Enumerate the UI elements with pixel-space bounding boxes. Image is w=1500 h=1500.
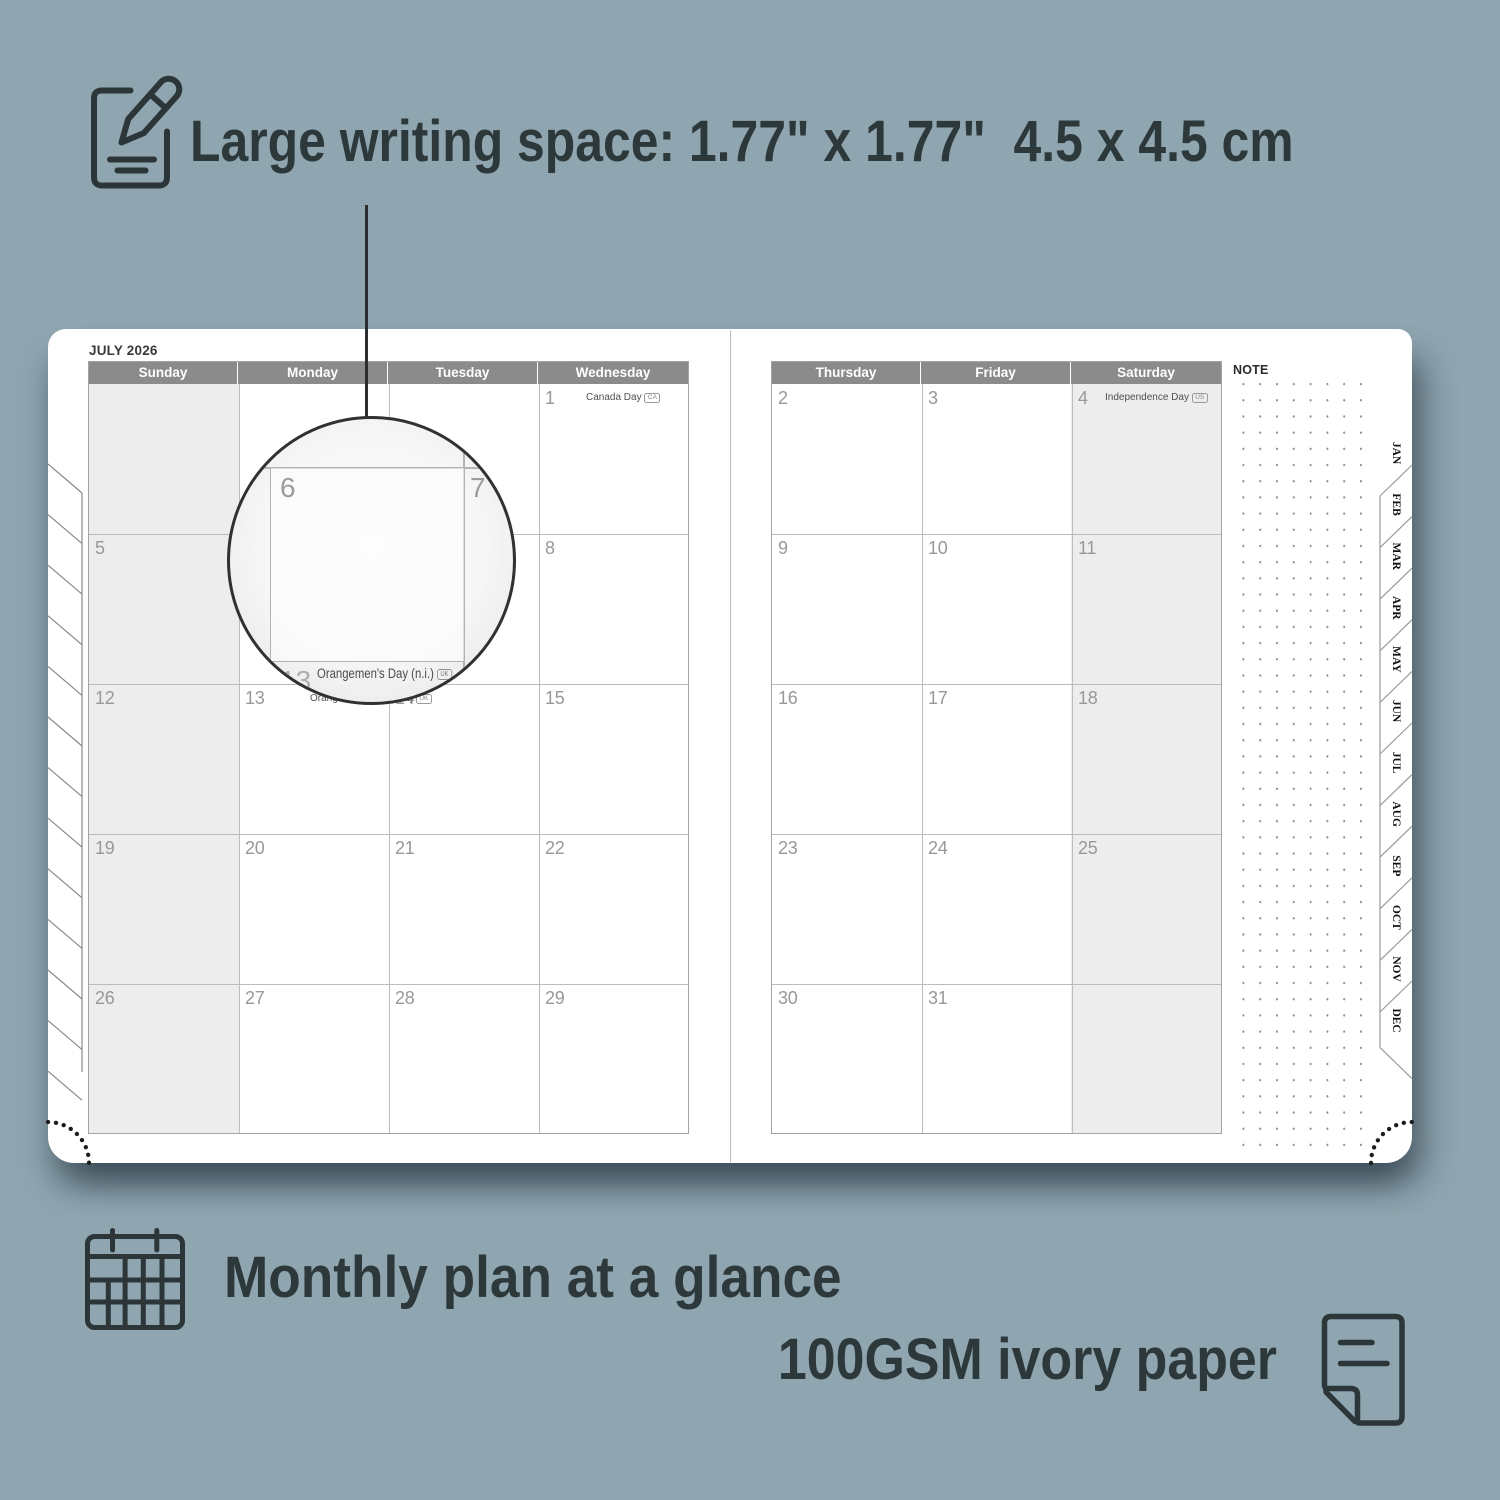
- svg-text:OCT: OCT: [1390, 905, 1402, 930]
- svg-text:JUN: JUN: [1390, 700, 1402, 723]
- svg-text:APR: APR: [1390, 596, 1402, 620]
- svg-text:DEC: DEC: [1390, 1008, 1402, 1032]
- svg-text:FEB: FEB: [1390, 493, 1402, 516]
- svg-text:NOV: NOV: [1390, 956, 1402, 982]
- svg-text:MAY: MAY: [1390, 646, 1402, 673]
- svg-text:JAN: JAN: [1390, 442, 1402, 465]
- svg-text:JUL: JUL: [1390, 752, 1402, 774]
- svg-text:AUG: AUG: [1390, 801, 1402, 827]
- svg-text:MAR: MAR: [1390, 542, 1402, 570]
- svg-text:SEP: SEP: [1390, 855, 1402, 876]
